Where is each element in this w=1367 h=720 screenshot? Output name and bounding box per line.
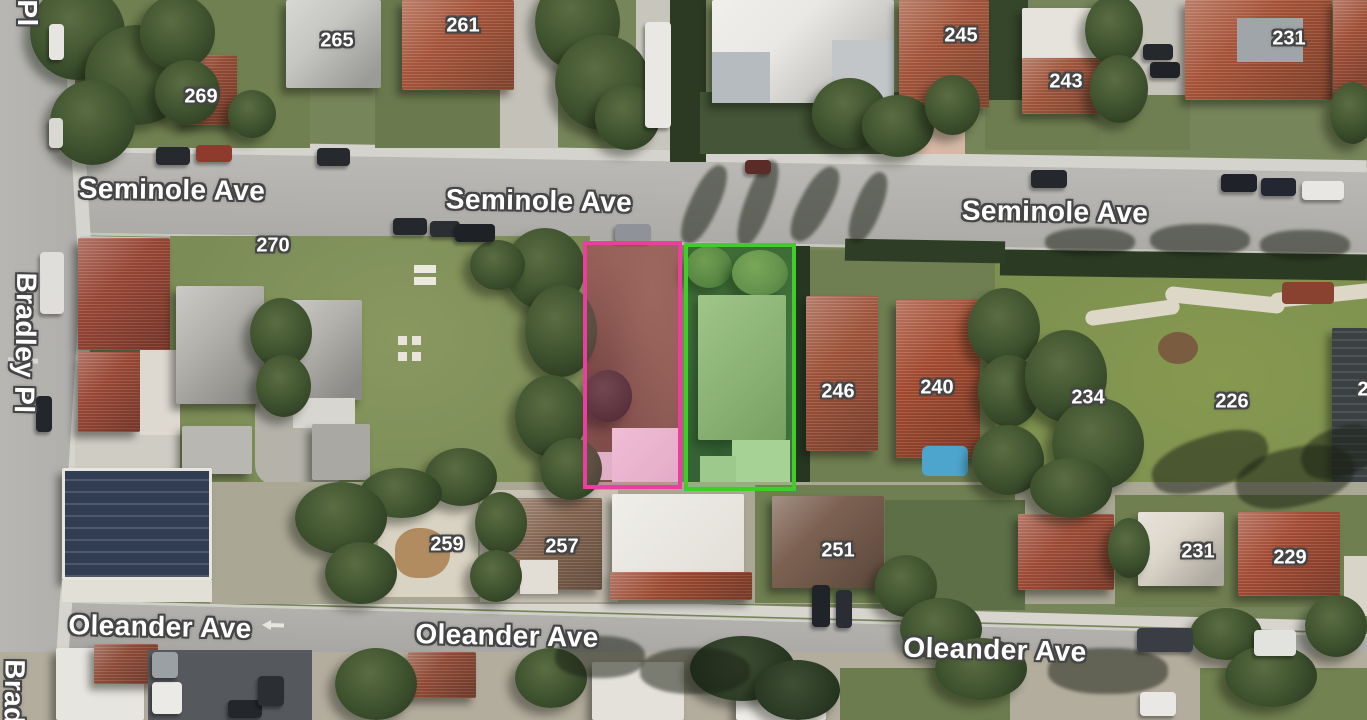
house-number-label: 269 (184, 86, 217, 109)
street-label: Oleander Ave (903, 632, 1087, 669)
house-number-label: 270 (256, 235, 289, 258)
house-number-label: 2 (1357, 379, 1367, 402)
street-label: Seminole Ave (446, 183, 633, 218)
pink-parcel-overlay[interactable] (583, 241, 682, 489)
house-number-label: 261 (446, 15, 479, 38)
street-label: Pl (11, 0, 43, 27)
house-number-label: 234 (1071, 387, 1104, 410)
house-number-label: 251 (821, 540, 854, 563)
street-label: Oleander Ave (68, 609, 252, 645)
street-label: Bradley Pl (8, 272, 42, 413)
house-number-label: 257 (545, 536, 578, 559)
house-number-label: 243 (1049, 71, 1082, 94)
house-number-label: 245 (944, 25, 977, 48)
house-number-label: 231 (1272, 28, 1305, 51)
house-number-label: 226 (1215, 391, 1248, 414)
house-number-label: 229 (1273, 547, 1306, 570)
green-parcel-overlay[interactable] (684, 243, 796, 491)
house-number-label: 265 (320, 30, 353, 53)
road-arrow-left (262, 620, 271, 630)
house-number-label: 259 (430, 534, 463, 557)
street-label: Oleander Ave (415, 618, 599, 654)
street-label: Brad (0, 659, 31, 720)
house-number-label: 246 (821, 381, 854, 404)
house-number-label: 240 (920, 377, 953, 400)
satellite-map[interactable]: PlSeminole AveSeminole AveSeminole AveBr… (0, 0, 1367, 720)
street-label: Seminole Ave (962, 195, 1149, 230)
street-label: Seminole Ave (79, 173, 266, 208)
house-number-label: 231 (1181, 541, 1214, 564)
